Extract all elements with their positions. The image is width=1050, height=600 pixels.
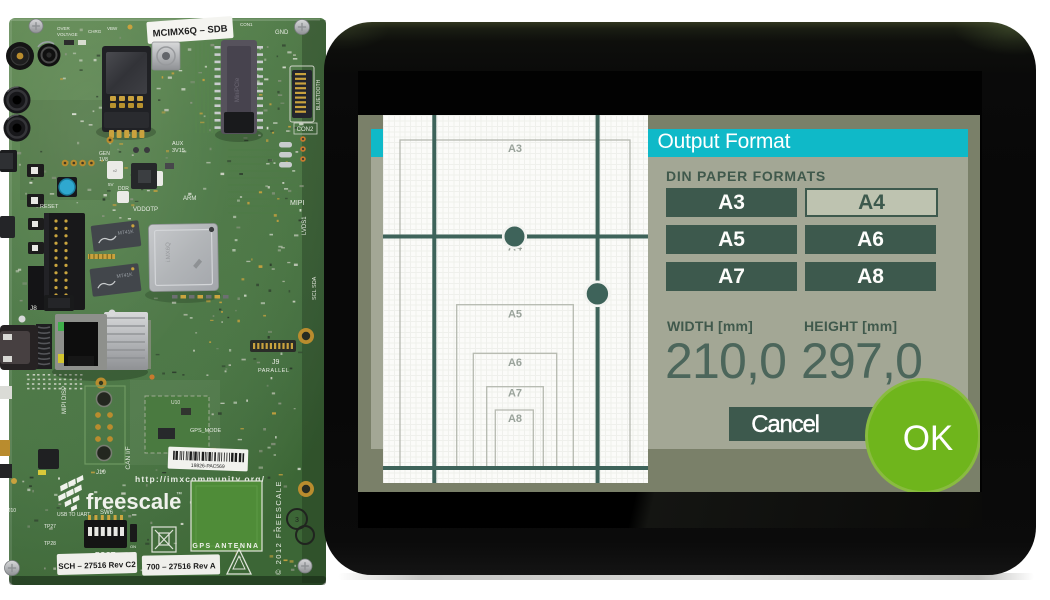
svg-text:J9: J9 bbox=[272, 359, 280, 366]
svg-text:LVDS1: LVDS1 bbox=[302, 216, 308, 235]
svg-text:DDR: DDR bbox=[118, 186, 129, 192]
svg-text:PARALLEL: PARALLEL bbox=[258, 368, 289, 374]
svg-text:A7: A7 bbox=[508, 388, 522, 400]
svg-text:A8: A8 bbox=[508, 413, 522, 425]
svg-text:CAN I/F: CAN I/F bbox=[125, 446, 132, 469]
svg-text:J10: J10 bbox=[96, 470, 106, 476]
svg-text:ARM: ARM bbox=[183, 196, 196, 202]
svg-text:VBW: VBW bbox=[107, 26, 118, 31]
svg-text:™: ™ bbox=[176, 491, 182, 498]
svg-text:SW6: SW6 bbox=[100, 510, 114, 516]
svg-text:USB TO UART: USB TO UART bbox=[57, 512, 90, 518]
svg-text:VOLTAGE: VOLTAGE bbox=[57, 32, 78, 37]
svg-text:RESET: RESET bbox=[40, 204, 59, 210]
svg-text:1V8: 1V8 bbox=[99, 157, 108, 163]
svg-text:19826-PAC569: 19826-PAC569 bbox=[191, 463, 225, 470]
svg-text:3V15: 3V15 bbox=[172, 148, 185, 154]
svg-text:MiniPCIe: MiniPCIe bbox=[235, 77, 241, 102]
svg-text:BLUETOOTH: BLUETOOTH bbox=[316, 79, 322, 110]
svg-text:i.MX6Q: i.MX6Q bbox=[166, 242, 172, 262]
svg-text:CHRG: CHRG bbox=[88, 29, 102, 34]
svg-text:A3: A3 bbox=[508, 143, 522, 155]
svg-text:J10: J10 bbox=[8, 508, 16, 514]
svg-text:VDDOTP: VDDOTP bbox=[133, 207, 158, 213]
svg-text:J8: J8 bbox=[30, 305, 37, 312]
svg-text:GPS_MODE: GPS_MODE bbox=[190, 428, 222, 434]
svg-text:U10: U10 bbox=[171, 400, 180, 406]
svg-text:3: 3 bbox=[295, 517, 299, 524]
svg-text:TP27: TP27 bbox=[44, 524, 56, 530]
svg-text:TP28: TP28 bbox=[44, 541, 56, 547]
svg-text:CON1: CON1 bbox=[240, 22, 253, 27]
svg-text:A6: A6 bbox=[508, 357, 522, 369]
svg-text:MIPI DISP: MIPI DISP bbox=[62, 386, 68, 414]
svg-text:© 2012 FREESCALE: © 2012 FREESCALE bbox=[274, 480, 283, 575]
svg-text:GPS ANTENNA: GPS ANTENNA bbox=[192, 543, 259, 550]
svg-text:OVER: OVER bbox=[57, 26, 71, 31]
svg-text:700 – 27516 Rev A: 700 – 27516 Rev A bbox=[146, 561, 215, 571]
svg-text:AUX: AUX bbox=[172, 141, 184, 147]
svg-text:MIPI: MIPI bbox=[290, 200, 304, 207]
svg-text:SCL SDA: SCL SDA bbox=[312, 276, 318, 300]
svg-text:A5: A5 bbox=[508, 309, 522, 321]
svg-text:5V: 5V bbox=[108, 182, 114, 187]
svg-text:ON: ON bbox=[130, 544, 136, 549]
svg-text:CON2: CON2 bbox=[297, 127, 314, 133]
svg-text:GND: GND bbox=[275, 30, 289, 36]
